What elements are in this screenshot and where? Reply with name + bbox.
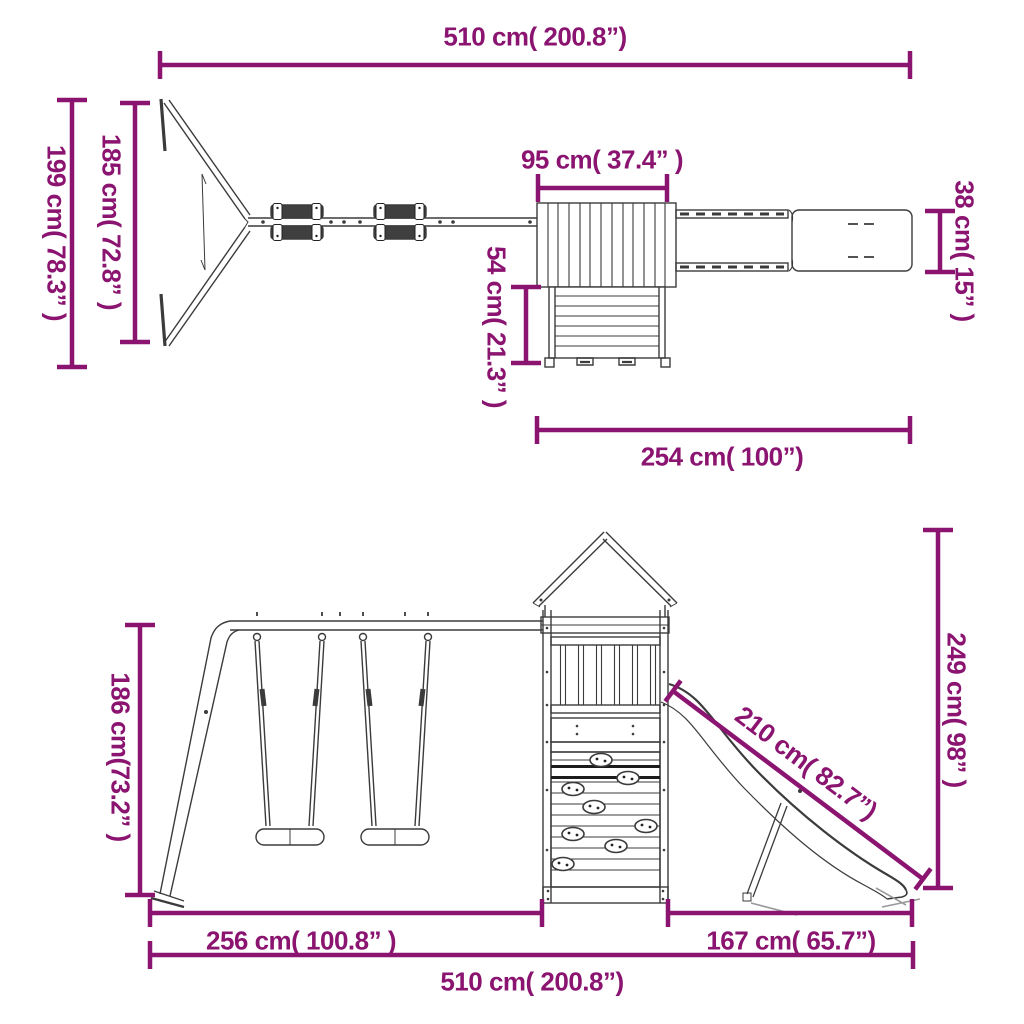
dimension-lines: [57, 51, 955, 969]
front-view-swings: [254, 634, 432, 846]
top-view-roof: [537, 203, 676, 287]
front-view-structure: [151, 532, 920, 915]
dim-line-front-slide-section: [668, 899, 912, 927]
dim-line-top-overall-width: [160, 51, 910, 79]
top-view-platform: [545, 287, 670, 367]
dim-label-top-roof-width: 95 cm( 37.4” ): [521, 145, 683, 176]
top-view-swing-frame: [161, 99, 250, 346]
top-view-beam: [248, 218, 538, 226]
dim-label-top-depth-frame: 185 cm( 72.8” ): [96, 134, 127, 310]
diagram-canvas: [0, 0, 1024, 1024]
dim-label-front-overall-width: 510 cm( 200.8”): [440, 967, 623, 998]
dim-line-top-tower-slide-length: [537, 416, 910, 444]
top-view-swing-seats: [271, 204, 426, 241]
dim-label-top-tower-slide-length: 254 cm( 100”): [641, 442, 804, 473]
dim-label-front-tower-height: 249 cm( 98” ): [941, 632, 972, 787]
dim-label-top-overall-width: 510 cm( 200.8”): [443, 22, 626, 53]
dim-line-front-swing-section: [150, 899, 542, 927]
dim-line-front-slide-length: [665, 681, 931, 890]
dim-label-front-swing-height: 186 cm(73.2” ): [105, 672, 136, 841]
top-view-structure: [161, 99, 912, 367]
dim-label-top-depth-overall: 199 cm( 78.3” ): [41, 145, 72, 321]
dim-line-top-roof-width: [538, 174, 667, 202]
front-view-climbing-holds: [552, 754, 657, 871]
top-view-slide: [676, 210, 912, 271]
dim-line-top-platform-depth: [511, 287, 541, 363]
dim-label-top-platform-depth: 54 cm( 21.3” ): [481, 246, 512, 408]
dim-label-top-slide-width: 38 cm( 15” ): [949, 180, 980, 321]
front-view-swing-frame: [151, 612, 543, 907]
dimension-diagram: 510 cm( 200.8”) 199 cm( 78.3” ) 185 cm( …: [0, 0, 1024, 1024]
dim-label-front-slide-section: 167 cm( 65.7”): [706, 926, 875, 957]
dim-label-front-swing-section: 256 cm( 100.8” ): [206, 926, 396, 957]
